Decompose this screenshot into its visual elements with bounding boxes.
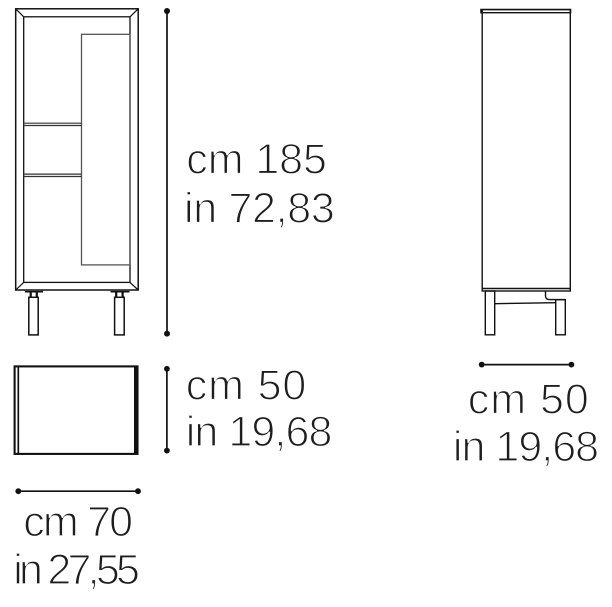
svg-text:in 27,55: in 27,55 <box>13 546 140 594</box>
svg-text:cm 70: cm 70 <box>23 498 133 546</box>
svg-text:cm 50: cm 50 <box>186 361 306 409</box>
svg-text:in 72,83: in 72,83 <box>184 185 335 233</box>
svg-text:cm 50: cm 50 <box>468 376 589 424</box>
svg-text:cm 185: cm 185 <box>186 136 327 184</box>
svg-text:in 19,68: in 19,68 <box>186 408 333 456</box>
svg-text:in 19,68: in 19,68 <box>453 423 599 471</box>
